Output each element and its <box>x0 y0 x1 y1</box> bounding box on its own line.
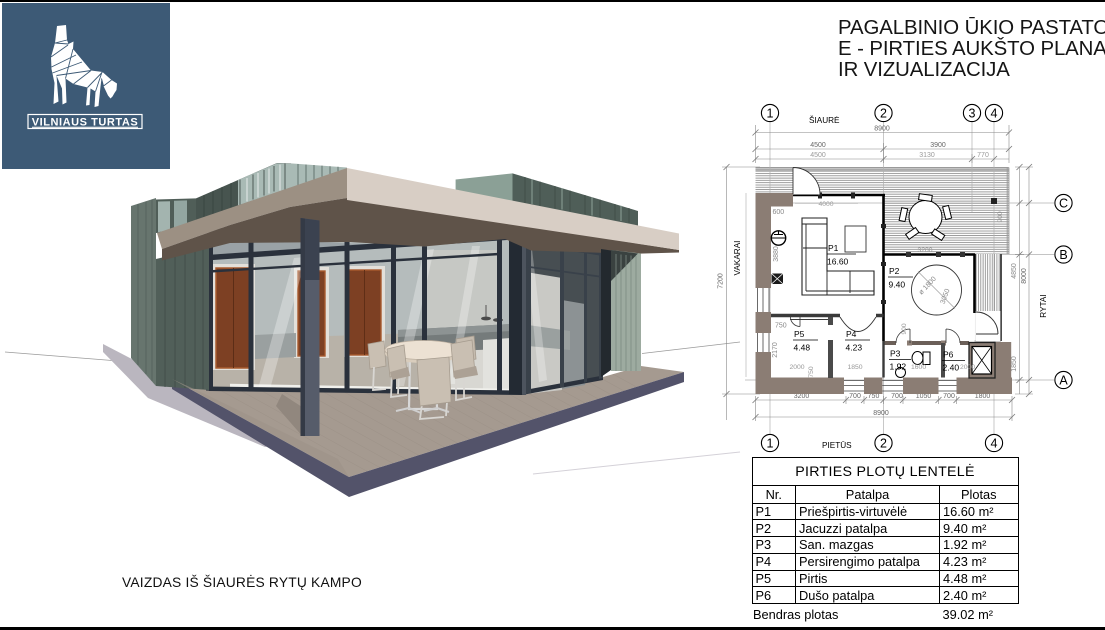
svg-text:750: 750 <box>808 366 815 378</box>
svg-text:3130: 3130 <box>919 152 935 159</box>
svg-text:P3: P3 <box>890 349 901 359</box>
svg-text:3200: 3200 <box>794 393 810 400</box>
svg-text:1850: 1850 <box>1011 356 1018 372</box>
svg-text:4000: 4000 <box>818 201 833 208</box>
svg-text:750: 750 <box>868 393 880 400</box>
svg-text:3880: 3880 <box>773 246 780 262</box>
svg-text:4850: 4850 <box>1011 263 1018 279</box>
svg-text:2000: 2000 <box>789 364 804 371</box>
svg-text:C: C <box>1059 197 1068 211</box>
svg-text:P6: P6 <box>943 350 954 360</box>
svg-text:P1: P1 <box>828 243 839 253</box>
svg-text:1: 1 <box>767 107 774 121</box>
svg-text:VAKARAI: VAKARAI <box>733 241 742 276</box>
svg-text:8000: 8000 <box>1021 268 1028 284</box>
svg-text:3900: 3900 <box>930 142 946 149</box>
svg-text:700: 700 <box>891 393 903 400</box>
svg-text:7200: 7200 <box>718 273 725 289</box>
svg-text:9.40: 9.40 <box>889 280 906 290</box>
svg-text:700: 700 <box>849 393 861 400</box>
svg-text:8900: 8900 <box>873 410 889 417</box>
svg-text:900: 900 <box>997 211 1004 223</box>
svg-text:3200: 3200 <box>917 247 932 254</box>
svg-text:750: 750 <box>775 323 787 330</box>
svg-text:2170: 2170 <box>772 342 779 358</box>
svg-text:2.40: 2.40 <box>943 363 960 373</box>
svg-text:4: 4 <box>991 437 998 451</box>
svg-text:P5: P5 <box>794 329 805 339</box>
svg-text:A: A <box>1059 374 1068 388</box>
svg-text:3: 3 <box>969 107 976 121</box>
svg-text:700: 700 <box>943 393 955 400</box>
svg-text:4500: 4500 <box>810 152 826 159</box>
svg-text:4500: 4500 <box>810 142 826 149</box>
svg-text:P4: P4 <box>846 329 857 339</box>
svg-text:2: 2 <box>880 107 887 121</box>
svg-text:P2: P2 <box>889 266 900 276</box>
svg-text:4: 4 <box>991 107 998 121</box>
svg-text:1600: 1600 <box>911 364 926 371</box>
svg-text:2: 2 <box>880 437 887 451</box>
svg-text:1.92: 1.92 <box>890 362 907 372</box>
svg-text:770: 770 <box>977 152 989 159</box>
svg-text:900: 900 <box>901 323 908 335</box>
svg-text:4.48: 4.48 <box>794 343 811 353</box>
svg-text:16.60: 16.60 <box>827 257 849 267</box>
svg-text:2000: 2000 <box>960 364 975 371</box>
svg-text:1800: 1800 <box>975 393 991 400</box>
svg-text:RYTAI: RYTAI <box>1039 294 1048 317</box>
svg-text:4.23: 4.23 <box>846 343 863 353</box>
svg-text:PIETŪS: PIETŪS <box>822 440 852 450</box>
svg-text:1850: 1850 <box>847 364 862 371</box>
svg-text:ŠIAURĖ: ŠIAURĖ <box>809 115 840 125</box>
svg-text:8900: 8900 <box>874 126 890 133</box>
svg-text:1: 1 <box>767 437 774 451</box>
svg-text:1050: 1050 <box>916 393 932 400</box>
svg-text:B: B <box>1059 248 1067 262</box>
svg-text:600: 600 <box>773 209 785 216</box>
